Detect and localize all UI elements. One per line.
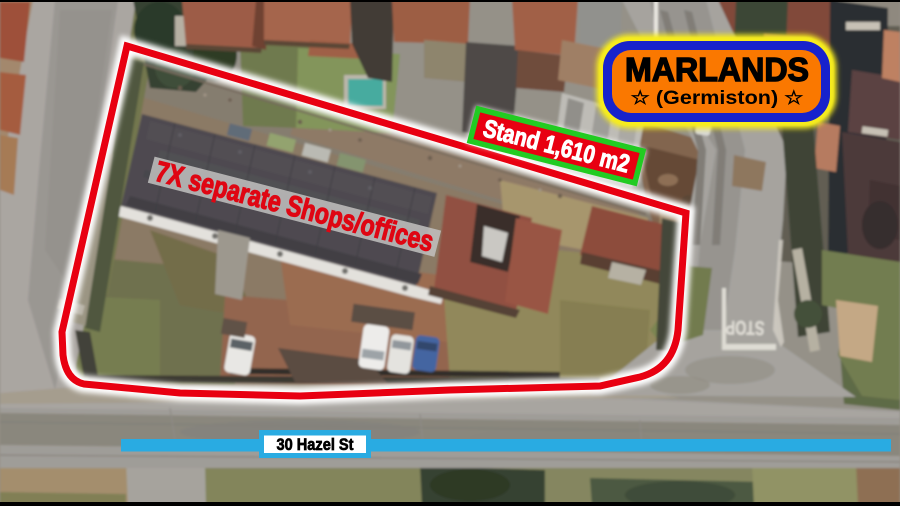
svg-text:MARLANDS: MARLANDS (625, 51, 809, 88)
svg-text:30 Hazel St: 30 Hazel St (277, 436, 354, 454)
svg-text:☆ (Germiston) ☆: ☆ (Germiston) ☆ (631, 88, 804, 109)
